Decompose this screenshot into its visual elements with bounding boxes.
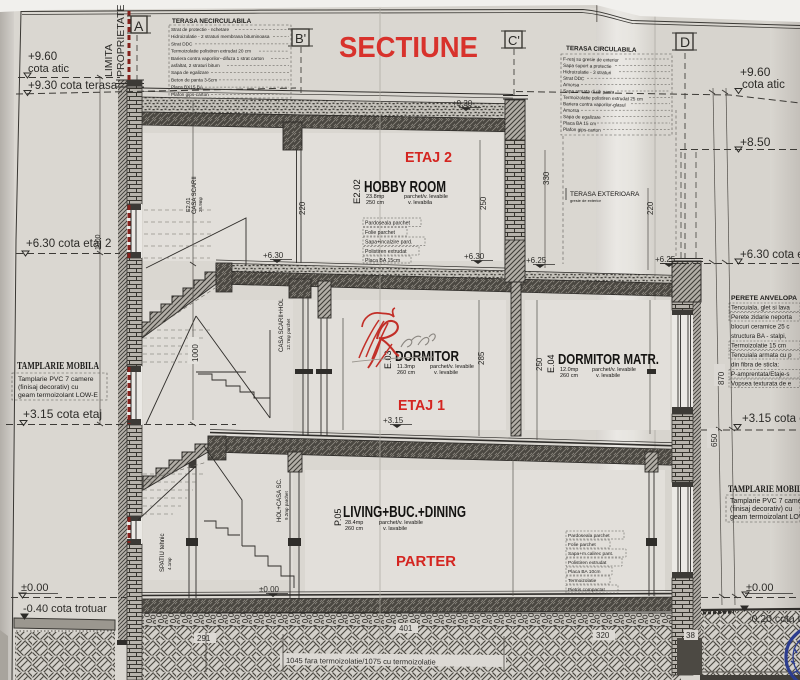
svg-text:4.1mp: 4.1mp — [167, 557, 172, 570]
svg-text:1045 fara termoizolatie/1075 c: 1045 fara termoizolatie/1075 cu termoizo… — [286, 656, 436, 667]
svg-text:E2.02: E2.02 — [352, 179, 363, 204]
svg-text:v. levabila: v. levabila — [408, 200, 433, 206]
svg-text:12.7mp parchet: 12.7mp parchet — [286, 318, 291, 350]
svg-text:Hidroizolatie - 2 straturi mem: Hidroizolatie - 2 straturi membrana bitu… — [171, 34, 270, 39]
svg-text:CASA SCARII+HOL: CASA SCARII+HOL — [279, 298, 285, 352]
svg-text:Pardoseala parchet: Pardoseala parchet — [568, 533, 610, 539]
svg-text:Plafon gips-carton: Plafon gips-carton — [171, 92, 209, 97]
svg-text:1000: 1000 — [95, 234, 102, 250]
svg-text:Sapa+incalzire pard.: Sapa+incalzire pard. — [365, 240, 412, 246]
svg-text:LIVING+BUC.+DINING: LIVING+BUC.+DINING — [343, 504, 466, 521]
svg-text:B': B' — [295, 31, 306, 46]
svg-text:E.04: E.04 — [546, 354, 556, 373]
svg-text:Amorsa: Amorsa — [563, 108, 580, 113]
svg-text:Folie parchet: Folie parchet — [568, 542, 596, 548]
svg-text:+6.25: +6.25 — [655, 255, 676, 264]
svg-text:+6.30: +6.30 — [464, 252, 485, 261]
svg-text:220: 220 — [646, 201, 655, 215]
svg-text:SPATIU tehnic: SPATIU tehnic — [160, 534, 166, 572]
svg-text:Beton de panta 3-5cm: Beton de panta 3-5cm — [171, 77, 217, 82]
svg-text:P.05: P.05 — [333, 509, 343, 526]
svg-text:±0.00: ±0.00 — [21, 582, 48, 594]
svg-text:25.9mp: 25.9mp — [198, 196, 203, 212]
svg-text:Pardoseala parchet: Pardoseala parchet — [365, 221, 411, 227]
svg-text:TAMPLARIE MOBILA: TAMPLARIE MOBILA — [17, 361, 100, 372]
svg-text:LIMITA: LIMITA — [103, 44, 115, 77]
svg-text:Tamplarie PVC 7 camer: Tamplarie PVC 7 camer — [730, 498, 800, 505]
svg-text:+9.60: +9.60 — [740, 65, 771, 79]
svg-text:Amorsa: Amorsa — [563, 82, 580, 87]
svg-text:PROPRIETATE: PROPRIETATE — [115, 4, 127, 77]
svg-text:Placa BA 15cm: Placa BA 15cm — [365, 258, 400, 264]
svg-text:TERASA NECIRCULABILA: TERASA NECIRCULABILA — [172, 18, 252, 25]
svg-text:260 cm: 260 cm — [345, 526, 363, 532]
svg-text:250: 250 — [535, 357, 544, 371]
svg-text:Strat DDC: Strat DDC — [171, 41, 193, 46]
svg-text:330: 330 — [542, 171, 551, 185]
svg-text:870: 870 — [717, 371, 726, 385]
svg-text:structura BA - stalpi,: structura BA - stalpi, — [731, 333, 787, 340]
svg-text:Bariera contra vaporilor--difu: Bariera contra vaporilor--difuza 1 strat… — [171, 56, 264, 61]
svg-text:(finisaj decorativ) cu: (finisaj decorativ) cu — [730, 506, 792, 513]
svg-text:Tencuiala, glet si lava: Tencuiala, glet si lava — [731, 305, 790, 312]
svg-text:din fibra de sticla:: din fibra de sticla: — [731, 362, 779, 369]
svg-text:Hidroizolatie - 3 straturi: Hidroizolatie - 3 straturi — [563, 69, 611, 75]
svg-text:geam termoizolant LOW-E: geam termoizolant LOW-E — [18, 392, 98, 399]
svg-text:Placa BX15 BA: Placa BX15 BA — [171, 85, 204, 90]
svg-text:1000: 1000 — [191, 344, 200, 362]
svg-text:9.2mp parchet: 9.2mp parchet — [284, 490, 289, 520]
svg-text:PERETE ANVELOPA: PERETE ANVELOPA — [731, 295, 797, 302]
svg-text:Sapa de egalizare: Sapa de egalizare — [171, 70, 209, 75]
svg-text:Placa BA 10cm: Placa BA 10cm — [568, 569, 601, 575]
svg-text:+8.50: +8.50 — [740, 135, 771, 149]
svg-text:Termoizolatie: Termoizolatie — [568, 578, 597, 584]
svg-text:ETAJ 1: ETAJ 1 — [398, 397, 445, 414]
svg-text:geam termoizolant LOW-: geam termoizolant LOW- — [730, 514, 800, 521]
svg-text:SECTIUNE: SECTIUNE — [339, 32, 478, 64]
svg-text:Plafon gips-carton: Plafon gips-carton — [563, 127, 601, 133]
svg-text:blocuri ceramice 25 c: blocuri ceramice 25 c — [731, 324, 789, 331]
svg-text:Sapa+m.calirec pant.: Sapa+m.calirec pant. — [568, 551, 613, 557]
svg-text:P-amprentata/Etaje-s: P-amprentata/Etaje-s — [731, 371, 789, 378]
svg-text:TERASA EXTERIOARA: TERASA EXTERIOARA — [570, 191, 640, 198]
svg-text:Polistiren extrudat: Polistiren extrudat — [568, 560, 607, 566]
svg-text:Vopsea texturata de e: Vopsea texturata de e — [731, 381, 792, 388]
svg-text:Polistiren extrudat: Polistiren extrudat — [365, 249, 407, 255]
svg-text:-0.40 cota trotuar: -0.40 cota trotuar — [23, 603, 107, 615]
svg-text:291: 291 — [197, 634, 211, 643]
svg-text:HOL+CASA SC.: HOL+CASA SC. — [277, 478, 283, 522]
svg-text:TAMPLARIE MOBIL: TAMPLARIE MOBIL — [728, 485, 800, 495]
svg-text:+6.30: +6.30 — [263, 251, 284, 260]
svg-text:+9.30 cota terasa: +9.30 cota terasa — [28, 80, 118, 92]
svg-text:±0.00: ±0.00 — [746, 582, 773, 594]
svg-text:220: 220 — [298, 201, 307, 215]
svg-text:250: 250 — [479, 196, 488, 210]
svg-text:cota atic: cota atic — [28, 63, 69, 75]
svg-text:+3.15: +3.15 — [383, 416, 404, 425]
svg-text:650: 650 — [710, 433, 719, 447]
svg-text:Sapa de egalizare: Sapa de egalizare — [563, 114, 601, 120]
svg-text:-0.20 cota trotuar: -0.20 cota trotuar — [748, 613, 800, 625]
svg-text:Termoizolatie 15 cm: Termoizolatie 15 cm — [731, 343, 786, 350]
svg-text:260 cm: 260 cm — [397, 370, 415, 376]
svg-text:A: A — [134, 18, 144, 34]
svg-text:260 cm: 260 cm — [560, 373, 578, 379]
svg-text:E.03: E.03 — [383, 350, 393, 369]
svg-text:asfaltat, 2 straturi bitum: asfaltat, 2 straturi bitum — [171, 63, 220, 68]
svg-text:DORMITOR: DORMITOR — [395, 348, 459, 365]
svg-text:+9.30: +9.30 — [452, 99, 473, 108]
svg-text:+6.30 cota etaj 2: +6.30 cota etaj 2 — [740, 249, 800, 261]
svg-text:v. levabile: v. levabile — [434, 370, 458, 376]
svg-text:DORMITOR MATR.: DORMITOR MATR. — [558, 351, 659, 368]
svg-text:+3.15 cota etaj: +3.15 cota etaj — [23, 407, 102, 421]
svg-text:285: 285 — [477, 351, 486, 365]
svg-text:Tamplarie PVC 7 camere: Tamplarie PVC 7 camere — [18, 376, 94, 383]
svg-text:(finisaj decorativ) cu: (finisaj decorativ) cu — [18, 384, 79, 391]
svg-text:Strat DDC: Strat DDC — [563, 76, 585, 81]
svg-text:Placa BA 15 cm: Placa BA 15 cm — [563, 121, 596, 127]
svg-text:Strat de protectie - nchetare: Strat de protectie - nchetare — [171, 27, 229, 32]
svg-text:+6.25: +6.25 — [526, 256, 547, 265]
svg-text:Termoizolatie polistiren extru: Termoizolatie polistiren extrudat 20 cm — [171, 49, 251, 54]
svg-text:v. lavabile: v. lavabile — [383, 526, 407, 532]
svg-text:320: 320 — [596, 631, 610, 640]
svg-text:PARTER: PARTER — [396, 553, 456, 570]
svg-text:250 cm: 250 cm — [366, 200, 384, 206]
svg-text:401: 401 — [399, 624, 413, 633]
svg-text:v. levabile: v. levabile — [596, 373, 620, 379]
svg-text:Pietris compactat: Pietris compactat — [568, 587, 605, 593]
svg-text:Sapa suport a protectie: Sapa suport a protectie — [563, 63, 612, 69]
svg-text:+3.15 cota etaj: +3.15 cota etaj — [742, 413, 800, 425]
svg-text:38: 38 — [686, 631, 695, 640]
svg-text:ETAJ 2: ETAJ 2 — [405, 149, 452, 166]
svg-text:C': C' — [508, 33, 520, 48]
svg-text:Folie parchet: Folie parchet — [365, 230, 396, 236]
svg-text:D: D — [680, 34, 690, 50]
svg-text:cota atic: cota atic — [742, 79, 785, 91]
svg-text:+9.60: +9.60 — [28, 51, 57, 63]
svg-text:gresie de exterior: gresie de exterior — [570, 198, 602, 203]
svg-text:Perete zidarie neporta: Perete zidarie neporta — [731, 314, 792, 321]
svg-text:Tencuiala armata cu p: Tencuiala armata cu p — [731, 352, 792, 359]
svg-text:±0.00: ±0.00 — [259, 585, 280, 594]
